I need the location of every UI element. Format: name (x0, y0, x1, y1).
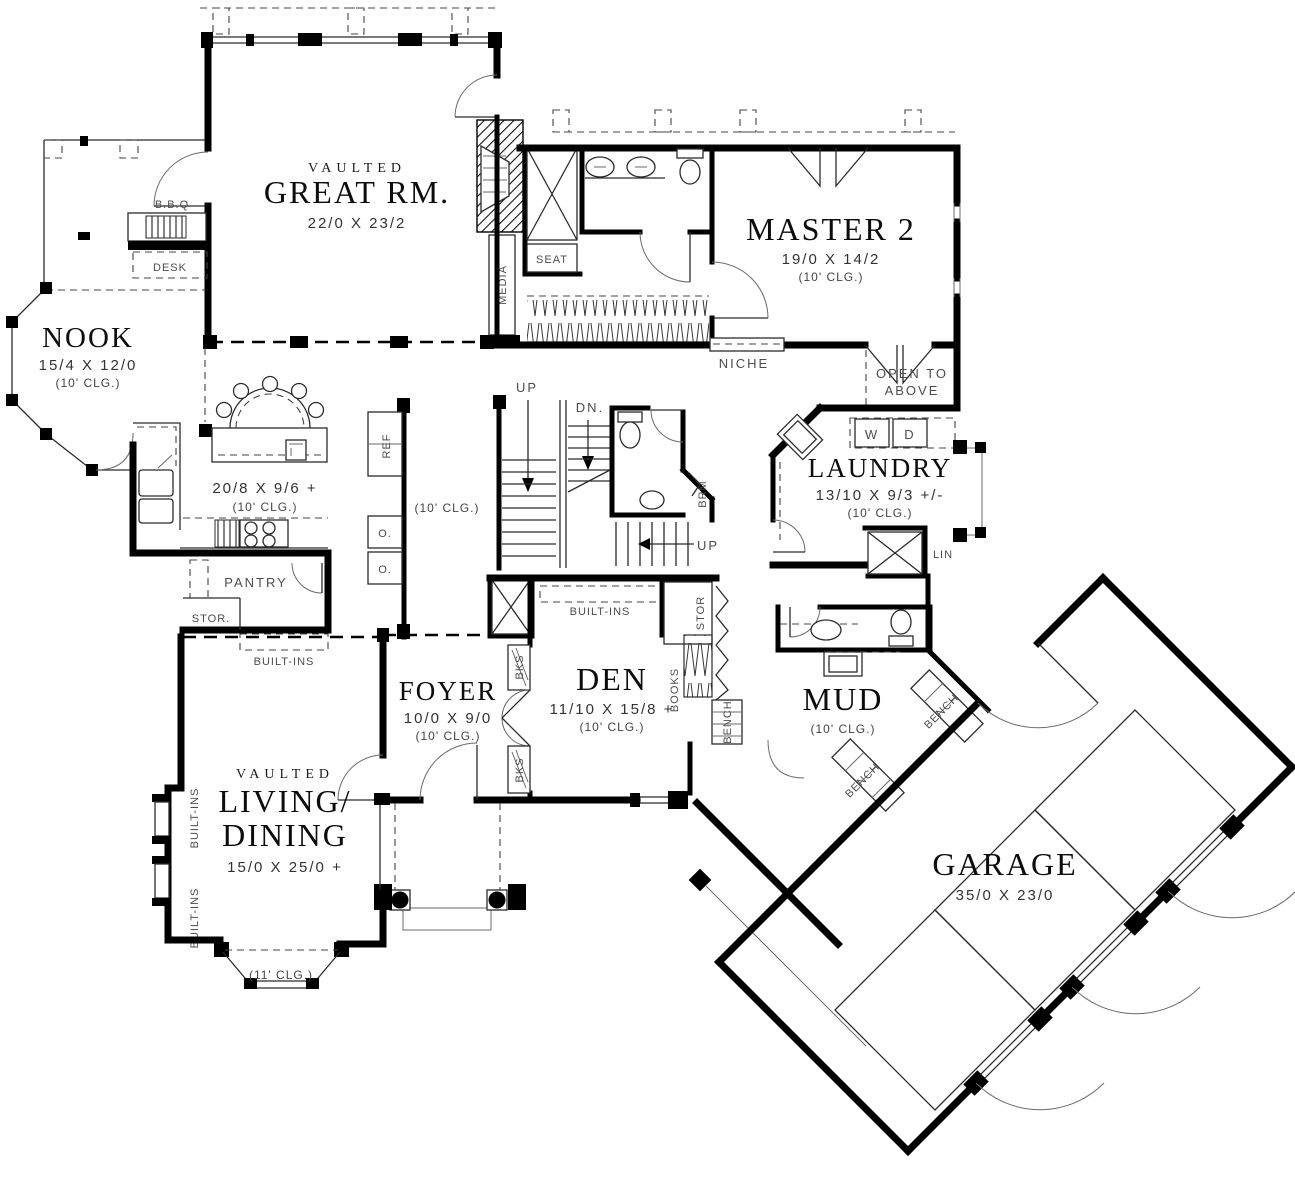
bbq-grill-icon (146, 216, 186, 238)
label-bench-1: BENCH (722, 700, 734, 744)
label-dn: DN. (576, 400, 604, 415)
room-bay-clg: (11' CLG.) (249, 968, 313, 982)
room-label-nook: NOOK (42, 322, 134, 354)
foyer: FOYER 10/0 X 9/0 (10' CLG.) (338, 578, 532, 930)
room-clg-foyer: (10' CLG.) (416, 729, 481, 743)
room-dims-nook: 15/4 X 12/0 (39, 357, 138, 374)
bookshelf-icon (684, 635, 712, 697)
room-label-laundry: LAUNDRY (808, 453, 953, 483)
room-label-living-2: DINING (222, 817, 348, 853)
label-hall-clg: (10' CLG.) (415, 501, 480, 515)
label-bbq: B.B.Q (155, 199, 189, 211)
label-oven-1: O. (378, 528, 392, 540)
room-clg-nook: (10' CLG.) (56, 376, 121, 390)
grill-icon (215, 520, 239, 547)
label-above: ABOVE (885, 383, 940, 398)
label-books: BOOKS (669, 668, 681, 712)
toilet-tank (677, 149, 703, 158)
room-dims-laundry: 13/10 X 9/3 +/- (816, 487, 945, 504)
room-label-mud: MUD (803, 681, 884, 717)
room-label-garage: GARAGE (932, 846, 1077, 882)
room-clg-mud: (10' CLG.) (811, 722, 876, 736)
stairs: UP DN. UP BRM (493, 380, 719, 568)
stool-icon (292, 384, 307, 399)
label-niche: NICHE (719, 356, 769, 371)
label-open-to: OPEN TO (876, 366, 948, 381)
porch-column-icon (392, 892, 409, 909)
room-label-great-rm: GREAT RM. (264, 174, 450, 210)
room-label-foyer: FOYER (399, 676, 498, 706)
label-lin: LIN (933, 549, 953, 561)
room-dims-den: 11/10 X 15/8 + (550, 701, 675, 718)
label-washer: W (865, 427, 879, 442)
stool-icon (263, 377, 278, 392)
label-bks-1: BKS (514, 654, 526, 679)
toilet-tank (889, 636, 913, 646)
room-clg-master2: (10' CLG.) (799, 270, 864, 284)
label-ref: REF (381, 434, 393, 459)
room-label-master2: MASTER 2 (746, 211, 916, 247)
label-seat: SEAT (536, 254, 568, 266)
room-dims-living: 15/0 X 25/0 + (227, 859, 343, 876)
pantry-block: PANTRY STOR. BUILT-INS (183, 553, 389, 668)
label-dryer: D (904, 427, 915, 442)
label-bks-2: BKS (514, 757, 526, 782)
toilet-icon (620, 422, 640, 448)
sink-icon (640, 491, 664, 509)
porch-column-icon (489, 892, 506, 909)
toilet-icon (891, 610, 911, 634)
den: BUILT-INS BKS BKS DEN 11/10 X 15/8 + (10… (490, 578, 742, 809)
label-built-ins-living-1: BUILT-INS (189, 788, 201, 849)
floor-plan-drawing: VAULTED GREAT RM. 22/0 X 23/2 MEDIA SEAT… (0, 0, 1295, 1200)
room-dims-kitchen: 20/8 X 9/6 + (212, 480, 317, 497)
label-pantry: PANTRY (224, 575, 288, 590)
label-built-ins-hall: BUILT-INS (254, 656, 315, 668)
room-clg-laundry: (10' CLG.) (848, 506, 913, 520)
garage: GARAGE 35/0 X 23/0 (719, 578, 1295, 1153)
car-stall-icon (935, 810, 1135, 1010)
master-2: MASTER 2 19/0 X 14/2 (10' CLG.) NICHE OP… (700, 148, 960, 408)
label-brm: BRM (697, 480, 709, 507)
label-stor-den: STOR (695, 596, 707, 630)
label-oven-2: O. (378, 564, 392, 576)
laundry: W D LAUNDRY 13/10 X 9/3 +/- (10' CLG.) L… (773, 408, 986, 650)
room-label-living-vaulted: VAULTED (236, 767, 334, 782)
room-label-den: DEN (576, 661, 648, 697)
closet-rod-icon (527, 300, 709, 342)
kitchen-sink-icon (139, 499, 173, 523)
great-room: VAULTED GREAT RM. 22/0 X 23/2 (154, 8, 502, 349)
toilet-icon (680, 160, 700, 184)
sink-icon (811, 620, 841, 640)
label-desk: DESK (153, 262, 187, 274)
kitchen-sink-icon (139, 470, 173, 496)
room-dims-great-rm: 22/0 X 23/2 (308, 215, 407, 232)
patio-nook: B.B.Q DESK NOOK 15/4 X 12/0 (10' CLG.) (6, 136, 212, 476)
room-label-living-1: LIVING/ (218, 783, 351, 819)
room-dims-foyer: 10/0 X 9/0 (404, 710, 492, 727)
room-clg-den: (10' CLG.) (580, 720, 645, 734)
room-dims-master2: 19/0 X 14/2 (782, 251, 881, 268)
label-up-1: UP (516, 380, 538, 395)
island-sink-icon (286, 440, 306, 460)
stool-icon (309, 403, 324, 418)
label-built-ins-den: BUILT-INS (570, 606, 631, 618)
room-clg-kitchen: (10' CLG.) (233, 500, 298, 514)
living-dining: BUILT-INS BUILT-INS VAULTED LIVING/ DINI… (152, 637, 390, 989)
label-up-2: UP (697, 538, 719, 553)
toilet-tank (618, 412, 642, 422)
kitchen: 20/8 X 9/6 + (10' CLG.) REF O. O. (10' C… (133, 377, 479, 640)
label-stor: STOR. (192, 613, 230, 625)
stool-icon (234, 384, 249, 399)
stool-icon (217, 403, 232, 418)
room-dims-garage: 35/0 X 23/0 (956, 887, 1055, 904)
car-stall-icon (835, 910, 1035, 1110)
floor-plan-sheet: VAULTED GREAT RM. 22/0 X 23/2 MEDIA SEAT… (0, 0, 1295, 1200)
